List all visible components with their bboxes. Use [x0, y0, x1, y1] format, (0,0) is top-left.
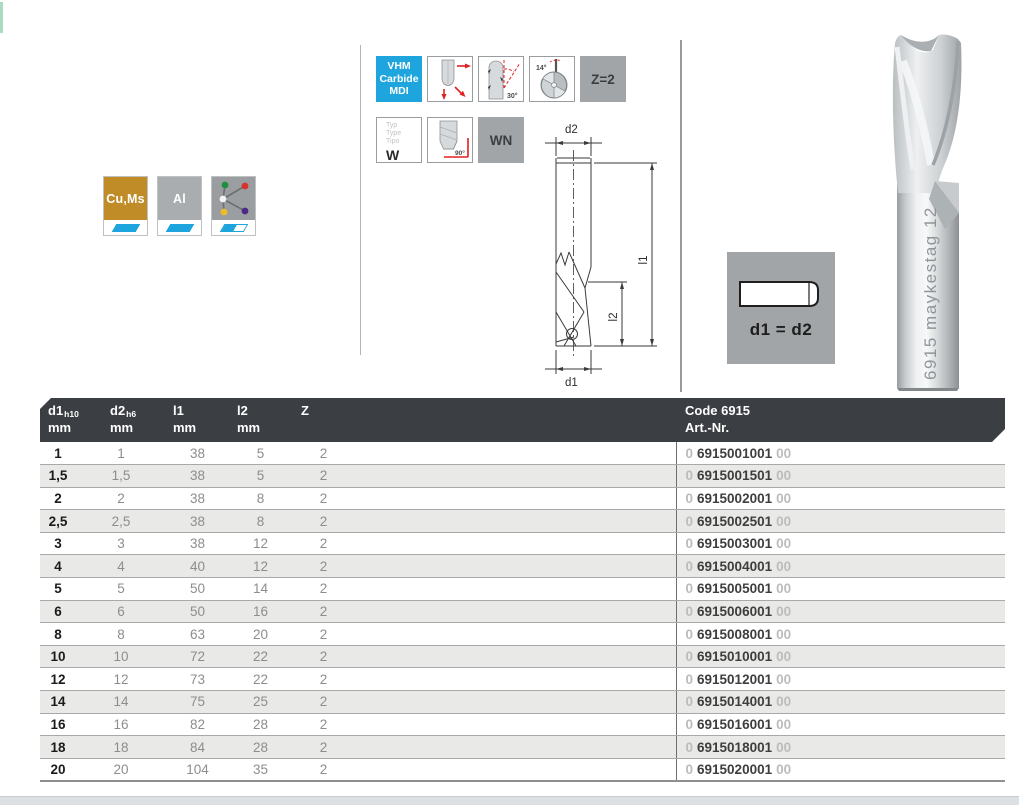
cell-l1: 104 [166, 758, 229, 781]
cell-art-nr: 0691500300100 [676, 532, 1005, 555]
art-number-pad: 0 [686, 717, 694, 732]
art-number: 6915002001 [697, 491, 772, 506]
material-network-icon [212, 177, 255, 220]
table-row: 20201043520691502000100 [40, 758, 1005, 781]
art-number-pad: 0 [686, 672, 694, 687]
equal-diameter-label: d1 = d2 [727, 320, 835, 340]
material-al-badge: Al [158, 177, 201, 220]
cell-d2: 1,5 [76, 465, 166, 488]
cell-d2: 3 [76, 532, 166, 555]
cell-art-nr: 0691500800100 [676, 623, 1005, 646]
cell-d1: 1 [40, 442, 76, 465]
art-number: 6915006001 [697, 604, 772, 619]
art-number-pad: 00 [776, 491, 791, 506]
table-row: 1616822820691501600100 [40, 713, 1005, 736]
cell-l2: 8 [229, 487, 292, 510]
art-number: 6915014001 [697, 694, 772, 709]
cell-l2: 8 [229, 510, 292, 533]
cell-z: 2 [292, 758, 355, 781]
cell-spacer [355, 713, 676, 736]
cell-spacer [355, 442, 676, 465]
table-row: 1010722220691501000100 [40, 645, 1005, 668]
cell-l1: 38 [166, 465, 229, 488]
cell-l1: 72 [166, 645, 229, 668]
cell-z: 2 [292, 713, 355, 736]
cell-spacer [355, 555, 676, 578]
cell-d1: 3 [40, 532, 76, 555]
art-number: 6915001501 [697, 468, 772, 483]
cell-d1: 18 [40, 736, 76, 759]
cell-d1: 6 [40, 600, 76, 623]
art-number: 6915018001 [697, 740, 772, 755]
suitability-partial-icon [219, 224, 248, 232]
cell-d2: 4 [76, 555, 166, 578]
art-number-pad: 00 [776, 536, 791, 551]
cell-z: 2 [292, 465, 355, 488]
cell-l1: 73 [166, 668, 229, 691]
cell-spacer [355, 758, 676, 781]
vertical-divider [680, 40, 682, 392]
art-number-pad: 00 [776, 694, 791, 709]
header-col-d2: d2h6 mm [110, 403, 135, 437]
cell-z: 2 [292, 442, 355, 465]
cell-z: 2 [292, 578, 355, 601]
cell-z: 2 [292, 691, 355, 714]
cell-l2: 12 [229, 532, 292, 555]
cell-l1: 63 [166, 623, 229, 646]
cell-l2: 12 [229, 555, 292, 578]
type-w-box: Typ Type Tipo W [376, 117, 422, 163]
cell-d1: 5 [40, 578, 76, 601]
cell-art-nr: 0691502000100 [676, 758, 1005, 781]
art-number: 6915003001 [697, 536, 772, 551]
cell-spacer [355, 510, 676, 533]
table-row: 44401220691500400100 [40, 555, 1005, 578]
cell-spacer [355, 668, 676, 691]
cell-spacer [355, 736, 676, 759]
header-col-l1: l1 mm [173, 403, 196, 437]
cell-l1: 50 [166, 578, 229, 601]
dimension-table: 11385206915001001001,51,5385206915001501… [40, 442, 1005, 782]
cell-l2: 5 [229, 442, 292, 465]
cell-l2: 25 [229, 691, 292, 714]
table-row: 55501420691500500100 [40, 578, 1005, 601]
cell-l2: 16 [229, 600, 292, 623]
art-number: 6915010001 [697, 649, 772, 664]
type-value: W [386, 147, 421, 163]
cell-d2: 16 [76, 713, 166, 736]
cell-art-nr: 0691500500100 [676, 578, 1005, 601]
cell-spacer [355, 623, 676, 646]
art-number-pad: 0 [686, 604, 694, 619]
cell-d1: 10 [40, 645, 76, 668]
cell-spacer [355, 691, 676, 714]
art-number-pad: 0 [686, 446, 694, 461]
table-row: 1212732220691501200100 [40, 668, 1005, 691]
product-photo: 6915 maykestag 12 [873, 33, 1013, 398]
table-row: 1818842820691501800100 [40, 736, 1005, 759]
point-angle-14-icon: 14° [529, 56, 575, 102]
header-col-z: Z [301, 403, 309, 420]
art-number-pad: 0 [686, 649, 694, 664]
art-number-pad: 00 [776, 468, 791, 483]
cell-z: 2 [292, 487, 355, 510]
table-header: d1h10 mm d2h6 mm l1 mm l2 mm Z Code 6915… [40, 398, 1005, 442]
vhm-line: VHM [387, 60, 410, 73]
cell-z: 2 [292, 510, 355, 533]
art-number: 6915008001 [697, 627, 772, 642]
plunge-direction-icon [427, 56, 473, 102]
typ-line: Tipo [386, 138, 421, 146]
cell-l1: 75 [166, 691, 229, 714]
cell-z: 2 [292, 532, 355, 555]
pictogram-row-2: Typ Type Tipo W 90° WN [376, 117, 524, 163]
cell-z: 2 [292, 623, 355, 646]
cell-l1: 82 [166, 713, 229, 736]
cell-d2: 2,5 [76, 510, 166, 533]
cell-d1: 1,5 [40, 465, 76, 488]
angle-90-label: 90° [455, 149, 465, 157]
art-number: 6915020001 [697, 762, 772, 777]
wn-shank-badge: WN [478, 117, 524, 163]
art-number-pad: 0 [686, 514, 694, 529]
art-number-pad: 00 [776, 672, 791, 687]
suitability-full-icon [165, 224, 194, 232]
art-number-pad: 0 [686, 694, 694, 709]
table-row: 1138520691500100100 [40, 442, 1005, 465]
art-number: 6915004001 [697, 559, 772, 574]
table-row: 2,52,538820691500250100 [40, 510, 1005, 533]
dim-label-l2: l2 [608, 313, 620, 322]
cell-l2: 28 [229, 736, 292, 759]
cell-z: 2 [292, 555, 355, 578]
material-universal [211, 176, 256, 236]
art-number: 6915001001 [697, 446, 772, 461]
material-cums-badge: Cu,Ms [104, 177, 147, 220]
cell-d1: 12 [40, 668, 76, 691]
art-number-pad: 00 [776, 604, 791, 619]
angle-30-label: 30° [507, 92, 518, 100]
cell-l2: 35 [229, 758, 292, 781]
art-number-pad: 0 [686, 468, 694, 483]
cell-d1: 2,5 [40, 510, 76, 533]
cell-l2: 22 [229, 668, 292, 691]
cell-z: 2 [292, 736, 355, 759]
helix-angle-30-icon: 30° [478, 56, 524, 102]
art-number-pad: 00 [776, 627, 791, 642]
cell-spacer [355, 600, 676, 623]
table-row: 2238820691500200100 [40, 487, 1005, 510]
cell-art-nr: 0691501000100 [676, 645, 1005, 668]
cell-d2: 12 [76, 668, 166, 691]
dimension-drawing: d2 l1 l2 d1 [520, 112, 660, 395]
cell-d1: 4 [40, 555, 76, 578]
cell-l1: 38 [166, 532, 229, 555]
art-number-pad: 0 [686, 581, 694, 596]
cell-l1: 38 [166, 510, 229, 533]
art-number-pad: 0 [686, 627, 694, 642]
flute-count-badge: Z=2 [580, 56, 626, 102]
cell-d2: 5 [76, 578, 166, 601]
art-number-pad: 00 [776, 581, 791, 596]
cell-art-nr: 0691500250100 [676, 510, 1005, 533]
material-icons: Cu,Ms Al [103, 176, 256, 236]
page-edge-mark [0, 2, 3, 33]
typ-line: Type [386, 130, 421, 138]
cell-l1: 38 [166, 442, 229, 465]
cell-d2: 2 [76, 487, 166, 510]
cell-d1: 16 [40, 713, 76, 736]
cell-d2: 6 [76, 600, 166, 623]
art-number-pad: 00 [776, 740, 791, 755]
cell-d1: 2 [40, 487, 76, 510]
suitability-strip [104, 220, 147, 235]
cell-art-nr: 0691501800100 [676, 736, 1005, 759]
cell-d2: 8 [76, 623, 166, 646]
cell-d2: 14 [76, 691, 166, 714]
cell-d1: 14 [40, 691, 76, 714]
engraving-text: 6915 maykestag 12 [921, 206, 940, 380]
vhm-carbide-badge: VHM Carbide MDI [376, 56, 422, 102]
corner-90-icon: 90° [427, 117, 473, 163]
cell-z: 2 [292, 645, 355, 668]
header-col-d1: d1h10 mm [48, 403, 78, 437]
cell-d1: 20 [40, 758, 76, 781]
cell-l1: 84 [166, 736, 229, 759]
cell-art-nr: 0691500100100 [676, 442, 1005, 465]
cell-l1: 50 [166, 600, 229, 623]
art-number-pad: 0 [686, 559, 694, 574]
header-col-l2: l2 mm [237, 403, 260, 437]
cell-art-nr: 0691500600100 [676, 600, 1005, 623]
suitability-full-icon [111, 224, 140, 232]
cell-art-nr: 0691501400100 [676, 691, 1005, 714]
typ-line: Typ [386, 122, 421, 130]
cell-art-nr: 0691501600100 [676, 713, 1005, 736]
art-number: 6915016001 [697, 717, 772, 732]
art-number-pad: 00 [776, 762, 791, 777]
table-body: 11385206915001001001,51,5385206915001501… [40, 442, 1005, 781]
material-al: Al [157, 176, 202, 236]
table-row: 66501620691500600100 [40, 600, 1005, 623]
material-cums: Cu,Ms [103, 176, 148, 236]
vhm-line: Carbide [379, 73, 418, 86]
cell-spacer [355, 465, 676, 488]
dim-label-d1: d1 [565, 377, 578, 389]
art-number-pad: 00 [776, 514, 791, 529]
art-number-pad: 00 [776, 717, 791, 732]
pictogram-row-1: VHM Carbide MDI [376, 56, 626, 102]
cell-l1: 40 [166, 555, 229, 578]
header-col-code: Code 6915 Art.-Nr. [685, 403, 750, 437]
cell-spacer [355, 578, 676, 601]
cell-d2: 20 [76, 758, 166, 781]
cell-spacer [355, 487, 676, 510]
art-number-pad: 0 [686, 762, 694, 777]
art-number-pad: 0 [686, 491, 694, 506]
cell-d2: 10 [76, 645, 166, 668]
art-number-pad: 0 [686, 536, 694, 551]
cell-art-nr: 0691501200100 [676, 668, 1005, 691]
vertical-divider [360, 45, 361, 355]
cell-l2: 20 [229, 623, 292, 646]
equal-diameter-box: d1 = d2 [727, 252, 835, 364]
suitability-strip [212, 220, 255, 235]
cell-art-nr: 0691500200100 [676, 487, 1005, 510]
cell-l2: 28 [229, 713, 292, 736]
cell-z: 2 [292, 668, 355, 691]
art-number-pad: 00 [776, 446, 791, 461]
art-number: 6915002501 [697, 514, 772, 529]
dim-label-l1: l1 [638, 256, 650, 265]
angle-14-label: 14° [536, 64, 547, 72]
table-row: 1414752520691501400100 [40, 691, 1005, 714]
cell-l1: 38 [166, 487, 229, 510]
cell-z: 2 [292, 600, 355, 623]
dim-label-d2: d2 [565, 124, 578, 136]
suitability-strip [158, 220, 201, 235]
art-number: 6915005001 [697, 581, 772, 596]
table-row: 88632020691500800100 [40, 623, 1005, 646]
art-number: 6915012001 [697, 672, 772, 687]
cell-art-nr: 0691500150100 [676, 465, 1005, 488]
catalog-page: Cu,Ms Al [0, 0, 1019, 805]
cell-d2: 18 [76, 736, 166, 759]
art-number-pad: 0 [686, 740, 694, 755]
cell-l2: 14 [229, 578, 292, 601]
art-number-pad: 00 [776, 649, 791, 664]
cell-d1: 8 [40, 623, 76, 646]
cell-spacer [355, 532, 676, 555]
table-row: 1,51,538520691500150100 [40, 465, 1005, 488]
art-number-pad: 00 [776, 559, 791, 574]
table-row: 33381220691500300100 [40, 532, 1005, 555]
cell-d2: 1 [76, 442, 166, 465]
cell-art-nr: 0691500400100 [676, 555, 1005, 578]
cell-l2: 5 [229, 465, 292, 488]
page-footer-bar [0, 796, 1019, 805]
cell-spacer [355, 645, 676, 668]
cell-l2: 22 [229, 645, 292, 668]
vhm-line: MDI [389, 85, 408, 98]
